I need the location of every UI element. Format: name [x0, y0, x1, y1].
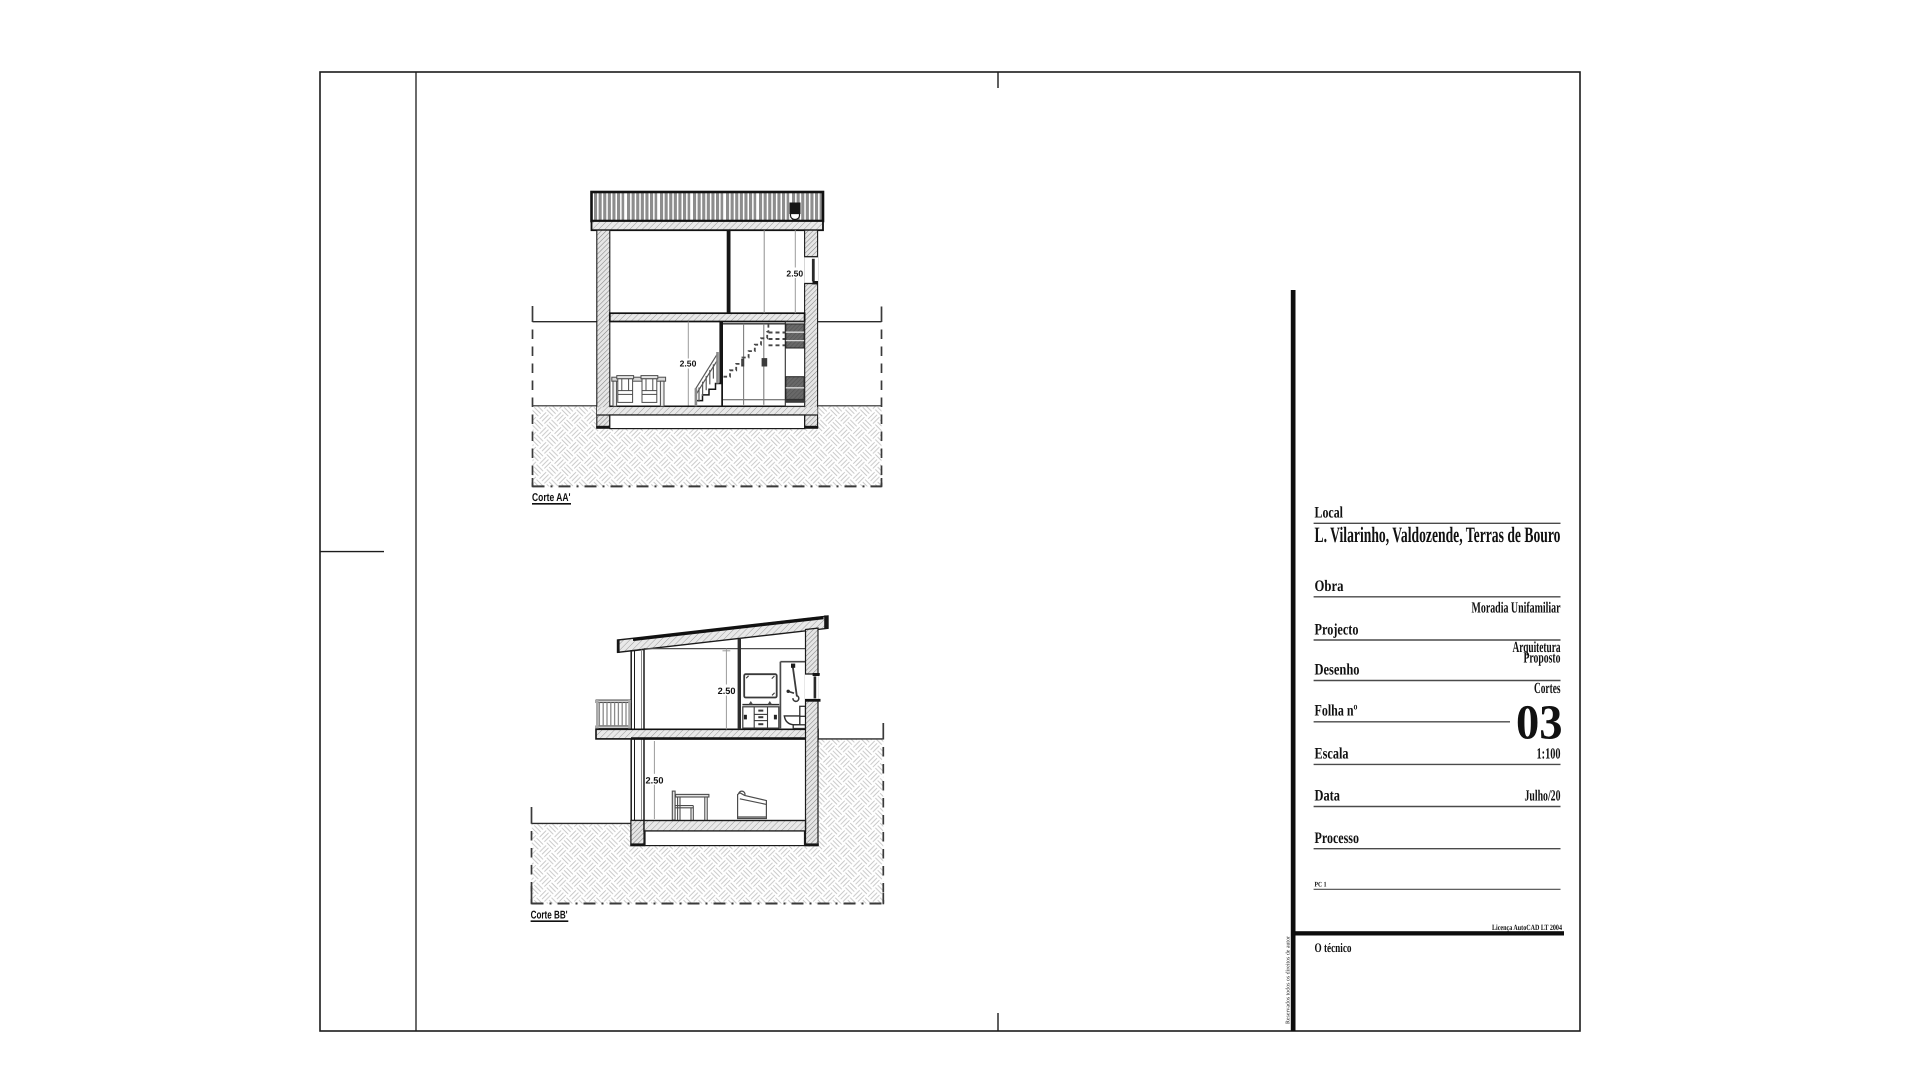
svg-text:Proposto: Proposto: [1524, 650, 1561, 667]
svg-text:03: 03: [1516, 694, 1563, 749]
svg-text:Escala: Escala: [1315, 746, 1349, 763]
svg-text:Projecto: Projecto: [1315, 622, 1359, 639]
svg-text:1:100: 1:100: [1537, 746, 1561, 763]
svg-text:Local: Local: [1315, 505, 1344, 522]
svg-text:Licença AutoCAD LT 2004: Licença AutoCAD LT 2004: [1492, 923, 1562, 932]
svg-text:Obra: Obra: [1315, 578, 1344, 595]
svg-text:Corte BB': Corte BB': [531, 909, 568, 921]
svg-text:L. Vilarinho, Valdozende, Terr: L. Vilarinho, Valdozende, Terras de Bour…: [1315, 522, 1561, 547]
svg-text:Moradia Unifamiliar: Moradia Unifamiliar: [1472, 599, 1561, 616]
svg-text:Processo: Processo: [1315, 830, 1360, 847]
svg-text:PC 1: PC 1: [1315, 880, 1327, 888]
svg-text:Corte AA': Corte AA': [532, 492, 571, 504]
svg-text:Desenho: Desenho: [1315, 662, 1360, 679]
svg-text:Reservados todos os direitos d: Reservados todos os direitos de autor: [1285, 936, 1292, 1024]
svg-text:Julho/20: Julho/20: [1525, 788, 1561, 805]
svg-text:O técnico: O técnico: [1315, 940, 1352, 955]
svg-text:2.50: 2.50: [786, 269, 803, 279]
svg-text:Folha nº: Folha nº: [1315, 703, 1358, 720]
svg-text:2.50: 2.50: [718, 686, 736, 696]
svg-text:Data: Data: [1315, 788, 1341, 805]
svg-text:2.50: 2.50: [680, 359, 697, 369]
svg-text:2.50: 2.50: [646, 775, 664, 785]
